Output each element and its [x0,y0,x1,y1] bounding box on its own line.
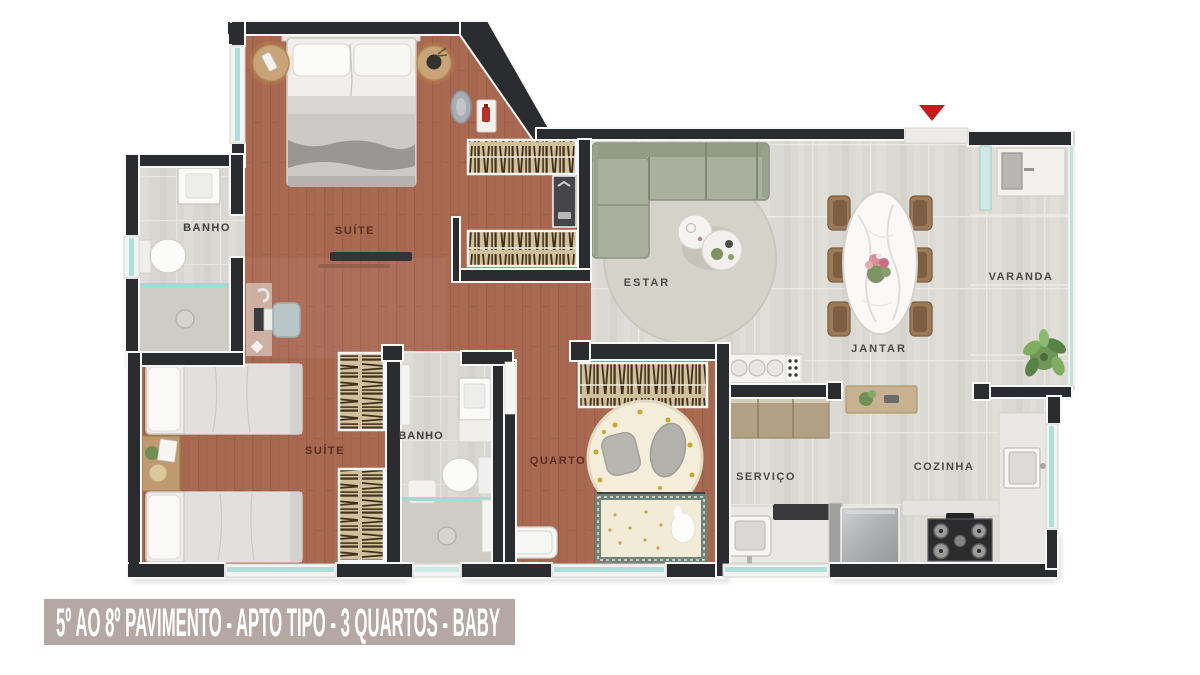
svg-text:BANHO: BANHO [183,222,231,234]
svg-text:COZINHA: COZINHA [914,461,975,473]
svg-text:SUÍTE: SUÍTE [335,224,375,237]
svg-text:SUÍTE: SUÍTE [305,444,345,457]
svg-text:QUARTO: QUARTO [530,455,586,467]
svg-text:VARANDA: VARANDA [989,271,1054,283]
svg-text:BANHO: BANHO [398,430,443,442]
svg-text:SERVIÇO: SERVIÇO [736,471,796,483]
svg-text:JANTAR: JANTAR [851,343,907,355]
svg-text:5º AO 8º PAVIMENTO - APTO TIPO: 5º AO 8º PAVIMENTO - APTO TIPO - 3 QUART… [56,601,500,645]
svg-text:ESTAR: ESTAR [624,277,670,289]
